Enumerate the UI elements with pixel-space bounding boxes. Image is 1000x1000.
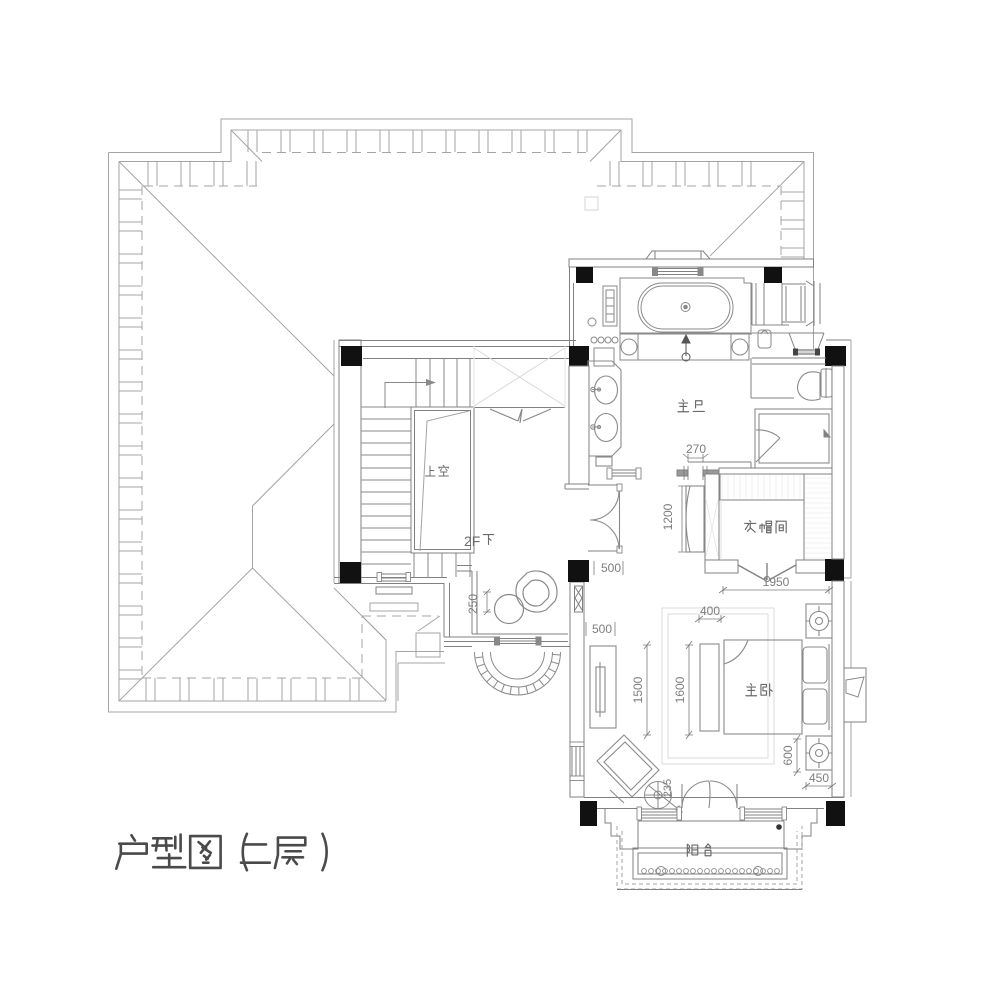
svg-text:500: 500 bbox=[592, 622, 612, 636]
svg-text:450: 450 bbox=[809, 771, 829, 785]
svg-text:600: 600 bbox=[781, 745, 795, 765]
svg-text:500: 500 bbox=[601, 561, 621, 575]
svg-text:1600: 1600 bbox=[673, 676, 687, 703]
svg-text:1500: 1500 bbox=[631, 676, 645, 703]
svg-text:270: 270 bbox=[686, 442, 706, 456]
svg-text:2F: 2F bbox=[464, 533, 480, 549]
svg-text:1200: 1200 bbox=[661, 503, 675, 530]
svg-text:235: 235 bbox=[662, 779, 674, 797]
svg-text:250: 250 bbox=[466, 594, 480, 614]
svg-text:400: 400 bbox=[700, 604, 720, 618]
svg-text:1950: 1950 bbox=[763, 575, 790, 589]
